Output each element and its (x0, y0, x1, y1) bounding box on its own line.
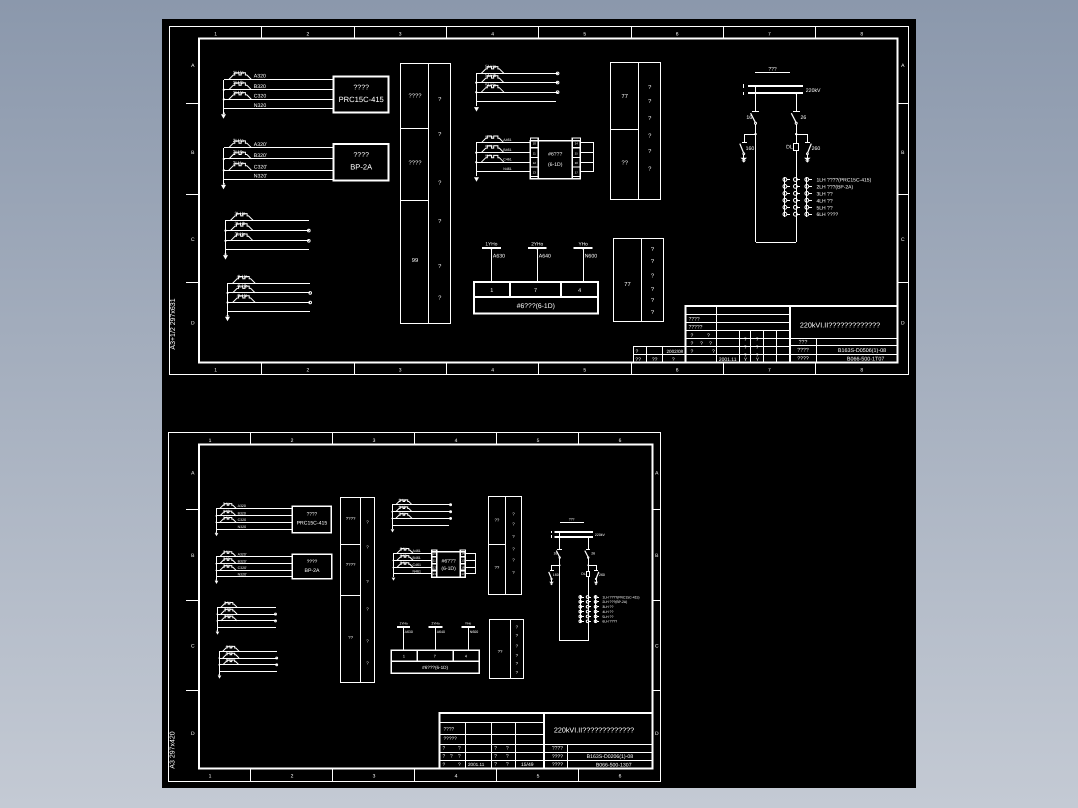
svg-text:220kVI.II?????????????: 220kVI.II????????????? (554, 726, 634, 735)
svg-text:3LHb: 3LHb (224, 607, 232, 611)
svg-text:5: 5 (537, 774, 540, 780)
svg-text:1LH ????(PRC15C-415): 1LH ????(PRC15C-415) (817, 178, 872, 184)
svg-text:?: ? (672, 357, 675, 363)
svg-text:5LH ??: 5LH ?? (602, 615, 613, 619)
svg-text:?: ? (756, 337, 759, 343)
svg-text:?: ? (443, 762, 446, 768)
svg-text:2LHa: 2LHa (223, 550, 231, 554)
svg-text:3: 3 (373, 438, 376, 444)
svg-text:17: 17 (575, 171, 579, 175)
svg-text:?: ? (712, 349, 715, 355)
svg-text:6: 6 (676, 32, 679, 38)
svg-text:11: 11 (533, 151, 536, 155)
svg-text:5: 5 (583, 32, 586, 38)
svg-text:(6-1D): (6-1D) (548, 162, 563, 168)
svg-text:3LH ??: 3LH ?? (817, 191, 833, 197)
svg-text:C320': C320' (254, 164, 267, 170)
svg-text:4LHc: 4LHc (226, 658, 234, 662)
svg-text:1: 1 (209, 438, 212, 444)
svg-text:B066-500-1T07: B066-500-1T07 (847, 356, 884, 362)
svg-text:1LH ????(PRC15C-415): 1LH ????(PRC15C-415) (602, 595, 639, 599)
svg-text:4LH ??: 4LH ?? (602, 610, 613, 614)
svg-text:4: 4 (455, 438, 458, 444)
svg-text:B320': B320' (238, 559, 247, 563)
svg-text:A630: A630 (405, 630, 413, 634)
svg-text:N461: N461 (503, 167, 511, 171)
svg-text:12: 12 (533, 161, 537, 165)
svg-text:16: 16 (553, 552, 557, 556)
svg-text:????: ???? (552, 754, 563, 760)
svg-text:N320': N320' (254, 174, 267, 180)
svg-text:1LHb: 1LHb (233, 80, 244, 85)
svg-text:3: 3 (399, 368, 402, 374)
svg-text:1: 1 (214, 368, 217, 374)
svg-text:17: 17 (461, 572, 465, 576)
svg-text:A320: A320 (254, 74, 266, 80)
svg-text:????: ???? (307, 511, 318, 517)
svg-text:1YHo: 1YHo (400, 622, 408, 626)
svg-text:10: 10 (433, 552, 437, 556)
svg-text:A461: A461 (503, 138, 511, 142)
svg-text:N600: N600 (585, 253, 598, 259)
svg-text:??: ?? (621, 160, 628, 167)
svg-text:5LH ??: 5LH ?? (817, 205, 833, 211)
svg-text:????: ???? (552, 746, 563, 752)
svg-text:1LHb: 1LHb (223, 509, 231, 513)
svg-text:220kV: 220kV (595, 533, 606, 537)
svg-text:?: ? (709, 341, 712, 347)
svg-text:?: ? (506, 762, 509, 768)
svg-text:?: ? (443, 754, 446, 760)
svg-text:A640: A640 (539, 253, 551, 259)
svg-text:?: ? (506, 745, 509, 751)
svg-text:(6-1D): (6-1D) (441, 566, 456, 572)
svg-text:C320: C320 (254, 94, 267, 100)
svg-text:3: 3 (373, 774, 376, 780)
svg-text:D: D (191, 731, 195, 737)
svg-text:N320: N320 (254, 103, 267, 109)
svg-text:4LHa: 4LHa (237, 274, 248, 279)
svg-text:B163S-D0506(1)-08: B163S-D0506(1)-08 (838, 348, 886, 354)
svg-text:1: 1 (214, 32, 217, 38)
svg-text:13: 13 (533, 171, 537, 175)
svg-text:2: 2 (291, 774, 294, 780)
svg-text:2LHa: 2LHa (233, 138, 244, 143)
svg-text:220kVI.II?????????????: 220kVI.II????????????? (800, 320, 880, 329)
svg-text:260: 260 (599, 573, 605, 577)
svg-text:A320: A320 (238, 504, 246, 508)
svg-text:N320': N320' (238, 573, 247, 577)
svg-text:???: ??? (569, 518, 575, 522)
svg-text:??: ?? (494, 518, 499, 523)
svg-text:7: 7 (534, 288, 537, 294)
svg-text:6LHc: 6LHc (400, 561, 408, 565)
svg-text:PRC15C-415: PRC15C-415 (339, 95, 384, 104)
svg-text:?: ? (494, 745, 497, 751)
svg-text:5LHc: 5LHc (485, 83, 496, 88)
svg-text:B320': B320' (254, 153, 267, 159)
svg-text:14: 14 (461, 552, 465, 556)
svg-text:?: ? (506, 753, 509, 759)
svg-text:?????: ????? (444, 736, 458, 742)
svg-text:C: C (191, 237, 195, 243)
svg-text:5: 5 (537, 438, 540, 444)
svg-text:1: 1 (403, 654, 405, 658)
svg-text:2: 2 (307, 368, 310, 374)
svg-text:YHo: YHo (579, 241, 589, 247)
svg-text:11: 11 (433, 559, 436, 563)
svg-text:?: ? (458, 746, 461, 752)
svg-text:3: 3 (399, 32, 402, 38)
svg-text:4LHa: 4LHa (226, 644, 234, 648)
svg-text:6LHa: 6LHa (485, 134, 493, 138)
svg-text:2: 2 (291, 438, 294, 444)
svg-text:4: 4 (491, 32, 494, 38)
svg-text:4LHc: 4LHc (237, 293, 248, 298)
svg-text:?: ? (443, 746, 446, 752)
svg-text:6LH ????: 6LH ???? (602, 620, 617, 624)
svg-text:2LHc: 2LHc (223, 564, 231, 568)
svg-text:7: 7 (768, 32, 771, 38)
svg-text:4: 4 (465, 654, 467, 658)
svg-text:2LHc: 2LHc (233, 161, 244, 166)
svg-text:?: ? (458, 754, 461, 760)
svg-text:B320: B320 (254, 84, 266, 90)
svg-text:7: 7 (434, 654, 436, 658)
svg-text:8: 8 (860, 32, 863, 38)
svg-text:2YHo: 2YHo (432, 622, 440, 626)
svg-text:3LHc: 3LHc (235, 231, 246, 236)
svg-text:160: 160 (553, 573, 559, 577)
svg-text:A640: A640 (437, 630, 445, 634)
svg-text:6LH ????: 6LH ???? (817, 212, 839, 218)
svg-text:4: 4 (491, 368, 494, 374)
svg-text:B163S-D0206(1)-08: B163S-D0206(1)-08 (587, 754, 634, 760)
svg-text:A320': A320' (238, 552, 247, 556)
svg-text:BP-2A: BP-2A (305, 568, 320, 574)
svg-text:YHo: YHo (465, 622, 472, 626)
svg-text:3LH ??: 3LH ?? (602, 605, 613, 609)
svg-text:5: 5 (583, 368, 586, 374)
svg-text:C461: C461 (413, 563, 421, 567)
svg-text:A3+1/2 297x631: A3+1/2 297x631 (169, 298, 177, 349)
svg-text:8: 8 (860, 368, 863, 374)
svg-text:5LHa: 5LHa (399, 498, 407, 502)
svg-text:16: 16 (746, 115, 752, 121)
svg-text:D: D (191, 321, 195, 327)
svg-text:DL: DL (786, 144, 793, 150)
svg-text:?: ? (636, 349, 639, 355)
svg-text:5LHa: 5LHa (485, 64, 496, 69)
svg-text:????: ???? (409, 160, 423, 167)
svg-text:N320: N320 (238, 525, 246, 529)
svg-text:6LHa: 6LHa (400, 546, 408, 550)
svg-text:1LHc: 1LHc (223, 515, 231, 519)
svg-text:??: ?? (652, 357, 658, 363)
svg-text:6: 6 (676, 368, 679, 374)
svg-text:???: ??? (768, 67, 777, 73)
svg-text:A461: A461 (413, 549, 421, 553)
svg-text:2LH ???(BP-2A): 2LH ???(BP-2A) (602, 600, 627, 604)
svg-text:16: 16 (575, 161, 579, 165)
svg-text:??: ?? (498, 649, 503, 654)
svg-text:77: 77 (621, 94, 627, 100)
svg-text:99: 99 (412, 257, 418, 264)
svg-text:?: ? (691, 349, 694, 355)
svg-text:2LHb: 2LHb (233, 150, 244, 155)
svg-text:12: 12 (433, 566, 437, 570)
svg-text:77: 77 (624, 282, 630, 288)
svg-text:?: ? (691, 333, 694, 339)
svg-text:14: 14 (575, 142, 579, 146)
svg-text:2LH ???(BP-2A): 2LH ???(BP-2A) (817, 184, 854, 190)
svg-text:A3 297x420: A3 297x420 (170, 731, 177, 768)
svg-text:13: 13 (433, 572, 437, 576)
svg-text:????: ???? (346, 562, 356, 567)
svg-text:1LHa: 1LHa (223, 502, 231, 506)
svg-text:?: ? (707, 333, 710, 339)
svg-text:B320: B320 (238, 512, 246, 516)
svg-text:????: ???? (346, 516, 356, 521)
svg-text:????: ???? (444, 727, 455, 733)
svg-text:DL: DL (581, 572, 586, 576)
svg-text:1LHa: 1LHa (233, 70, 244, 75)
svg-text:4LHb: 4LHb (237, 283, 248, 288)
svg-text:5LHb: 5LHb (399, 505, 407, 509)
svg-text:A630: A630 (493, 253, 505, 259)
svg-text:4: 4 (455, 774, 458, 780)
svg-text:B461: B461 (503, 148, 511, 152)
svg-text:15/49: 15/49 (521, 762, 534, 768)
svg-text:2YHo: 2YHo (531, 241, 543, 247)
svg-text:????: ???? (307, 559, 318, 565)
svg-text:3LHa: 3LHa (224, 600, 232, 604)
svg-text:C: C (901, 237, 905, 243)
svg-text:C: C (655, 644, 659, 650)
svg-text:260: 260 (812, 146, 821, 152)
svg-text:3LHb: 3LHb (235, 221, 246, 226)
svg-text:?: ? (450, 754, 453, 760)
svg-text:?: ? (700, 341, 703, 347)
svg-text:????: ???? (409, 93, 423, 100)
svg-text:5LHc: 5LHc (399, 512, 407, 516)
svg-text:?: ? (744, 345, 747, 351)
svg-text:?: ? (458, 762, 461, 768)
svg-text:C461: C461 (503, 157, 511, 161)
svg-text:2: 2 (307, 32, 310, 38)
svg-text:??: ?? (494, 565, 499, 570)
svg-text:A320': A320' (254, 142, 267, 148)
svg-text:D: D (655, 731, 659, 737)
svg-text:6: 6 (619, 438, 622, 444)
svg-text:????: ???? (353, 152, 369, 159)
svg-text:4: 4 (578, 288, 581, 294)
svg-text:160: 160 (746, 146, 755, 152)
svg-text:16: 16 (461, 566, 465, 570)
svg-text:?: ? (756, 353, 759, 359)
svg-text:#6???(6-1D): #6???(6-1D) (422, 665, 448, 670)
svg-text:????: ???? (353, 85, 369, 92)
svg-text:#6???: #6??? (442, 558, 456, 564)
svg-text:6LHb: 6LHb (485, 144, 493, 148)
svg-text:C320': C320' (238, 566, 247, 570)
svg-text:#6???: #6??? (548, 152, 562, 158)
svg-text:3LHa: 3LHa (235, 211, 246, 216)
svg-text:15: 15 (461, 559, 465, 563)
svg-text:1: 1 (209, 774, 212, 780)
svg-text:6LHb: 6LHb (400, 554, 408, 558)
svg-text:N600: N600 (470, 630, 478, 634)
svg-text:??: ?? (348, 635, 353, 640)
svg-text:??: ?? (635, 357, 641, 363)
svg-text:PRC15C-415: PRC15C-415 (297, 520, 328, 526)
svg-text:N461: N461 (413, 569, 421, 573)
svg-text:1YHo: 1YHo (485, 241, 497, 247)
svg-text:?????: ????? (689, 325, 703, 331)
svg-text:B066-500-1307: B066-500-1307 (596, 762, 632, 768)
svg-text:????: ???? (552, 762, 563, 768)
svg-text:3LHc: 3LHc (224, 614, 232, 618)
svg-text:10: 10 (533, 142, 537, 146)
svg-text:B461: B461 (413, 556, 421, 560)
svg-text:1: 1 (490, 288, 493, 294)
svg-text:BP-2A: BP-2A (350, 162, 373, 171)
svg-text:2001.11: 2001.11 (719, 357, 737, 363)
svg-text:?: ? (744, 337, 747, 343)
svg-text:????: ???? (689, 316, 700, 322)
svg-text:2002/08: 2002/08 (667, 349, 684, 354)
svg-text:????: ???? (797, 348, 809, 354)
svg-text:220kV: 220kV (806, 88, 821, 94)
svg-text:4LHb: 4LHb (226, 651, 234, 655)
svg-text:????: ???? (797, 356, 809, 362)
svg-text:?: ? (744, 353, 747, 359)
svg-text:C320: C320 (238, 518, 246, 522)
svg-text:1LHc: 1LHc (233, 90, 244, 95)
svg-text:26: 26 (801, 115, 807, 121)
svg-text:6LHc: 6LHc (485, 154, 493, 158)
svg-text:7: 7 (768, 368, 771, 374)
svg-text:4LH ??: 4LH ?? (817, 198, 833, 204)
svg-text:6: 6 (619, 774, 622, 780)
svg-text:???: ??? (799, 340, 808, 346)
svg-text:15: 15 (575, 151, 579, 155)
svg-text:?: ? (494, 762, 497, 768)
svg-text:?: ? (756, 345, 759, 351)
svg-text:#6???(6-1D): #6???(6-1D) (517, 303, 555, 310)
svg-text:26: 26 (591, 552, 595, 556)
svg-text:5LHb: 5LHb (485, 73, 496, 78)
svg-text:C: C (191, 644, 195, 650)
svg-text:?: ? (691, 341, 694, 347)
svg-text:2001.11: 2001.11 (468, 762, 485, 767)
svg-text:2LHb: 2LHb (223, 557, 231, 561)
svg-text:?: ? (494, 753, 497, 759)
svg-text:D: D (901, 321, 905, 327)
